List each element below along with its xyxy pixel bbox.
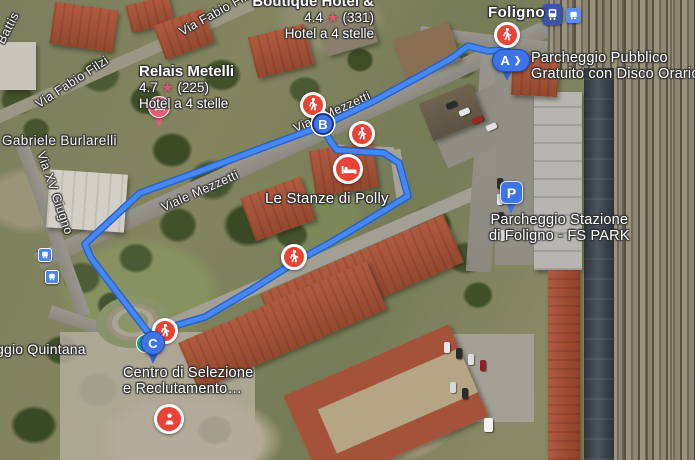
walking-badge-4[interactable]: [281, 244, 307, 270]
label-foligno[interactable]: Foligno: [488, 4, 545, 21]
bus-icon: [48, 273, 56, 281]
label-parcheggio-stazione[interactable]: Parcheggio Stazione di Foligno - FS PARK: [489, 212, 630, 244]
bus-station-icon[interactable]: [566, 8, 581, 23]
label-boutique-hotel[interactable]: Boutique Hotel & 4.4 ★ (331) Hotel a 4 s…: [238, 0, 374, 41]
hotel-category: Hotel a 4 stelle: [238, 26, 374, 41]
marker-c-letter: C: [148, 336, 157, 351]
hotel-name: Relais Metelli: [139, 63, 234, 80]
label-parcheggio-pubblico[interactable]: Parcheggio Pubblico Gratuito con Disco O…: [531, 50, 695, 82]
walking-person-icon: [498, 26, 516, 44]
marker-a-letter: A: [501, 53, 510, 68]
bus-icon: [41, 251, 49, 259]
label-centro-selezione[interactable]: Centro di Selezione e Reclutamento…: [123, 365, 253, 397]
label-le-stanze-di-polly[interactable]: Le Stanze di Polly: [265, 190, 389, 207]
walking-person-icon: [285, 248, 303, 266]
star-icon: ★: [162, 80, 174, 95]
label-line: Centro di Selezione: [123, 365, 253, 381]
marker-a-expand-chevron[interactable]: ❯: [514, 55, 522, 66]
hotel-name: Boutique Hotel &: [238, 0, 374, 10]
marker-a[interactable]: A ❯: [492, 49, 530, 72]
bus-stop-icon[interactable]: [45, 270, 59, 284]
label-line: Parcheggio Stazione: [489, 212, 630, 228]
bed-icon: [339, 160, 358, 179]
review-count: (225): [177, 80, 209, 95]
star-icon: ★: [327, 10, 339, 25]
bus-icon: [569, 11, 578, 20]
hotel-category: Hotel a 4 stelle: [139, 96, 234, 111]
label-line: di Foligno - FS PARK: [489, 228, 630, 244]
route-line-branch: [157, 128, 408, 338]
hotel-rating: 4.4 ★ (331): [238, 10, 374, 26]
walking-badge-1[interactable]: [494, 22, 520, 48]
walking-badge-3[interactable]: [349, 121, 375, 147]
label-quintana[interactable]: ggio Quintana: [0, 341, 86, 357]
parking-pin-letter: P: [507, 185, 516, 201]
person-icon: [161, 411, 178, 428]
train-station-icon[interactable]: [542, 4, 563, 25]
route-casing-branch: [157, 128, 408, 338]
marker-c[interactable]: C: [141, 331, 165, 355]
walking-person-icon: [353, 125, 371, 143]
label-relais-metelli[interactable]: Relais Metelli 4.7 ★ (225) Hotel a 4 ste…: [139, 63, 234, 111]
label-line: Parcheggio Pubblico: [531, 50, 695, 66]
walking-person-icon: [304, 96, 322, 114]
parking-pin[interactable]: P: [500, 181, 523, 204]
centro-poi-badge[interactable]: [154, 404, 184, 434]
hotel-rating: 4.7 ★ (225): [139, 80, 234, 96]
label-line: e Reclutamento…: [123, 381, 253, 397]
marker-b-letter: B: [318, 117, 327, 132]
marker-b[interactable]: B: [312, 113, 334, 135]
rating-value: 4.7: [139, 80, 158, 95]
review-count: (331): [342, 10, 374, 25]
hotel-poi-badge[interactable]: [333, 154, 363, 184]
train-icon: [546, 8, 559, 21]
satellite-map[interactable]: A ❯ B C P Battis Via Fabio Filzi Via Fab…: [0, 0, 695, 460]
bus-stop-icon[interactable]: [38, 248, 52, 262]
rating-value: 4.4: [304, 10, 323, 25]
label-line: Gratuito con Disco Orario: [531, 66, 695, 82]
